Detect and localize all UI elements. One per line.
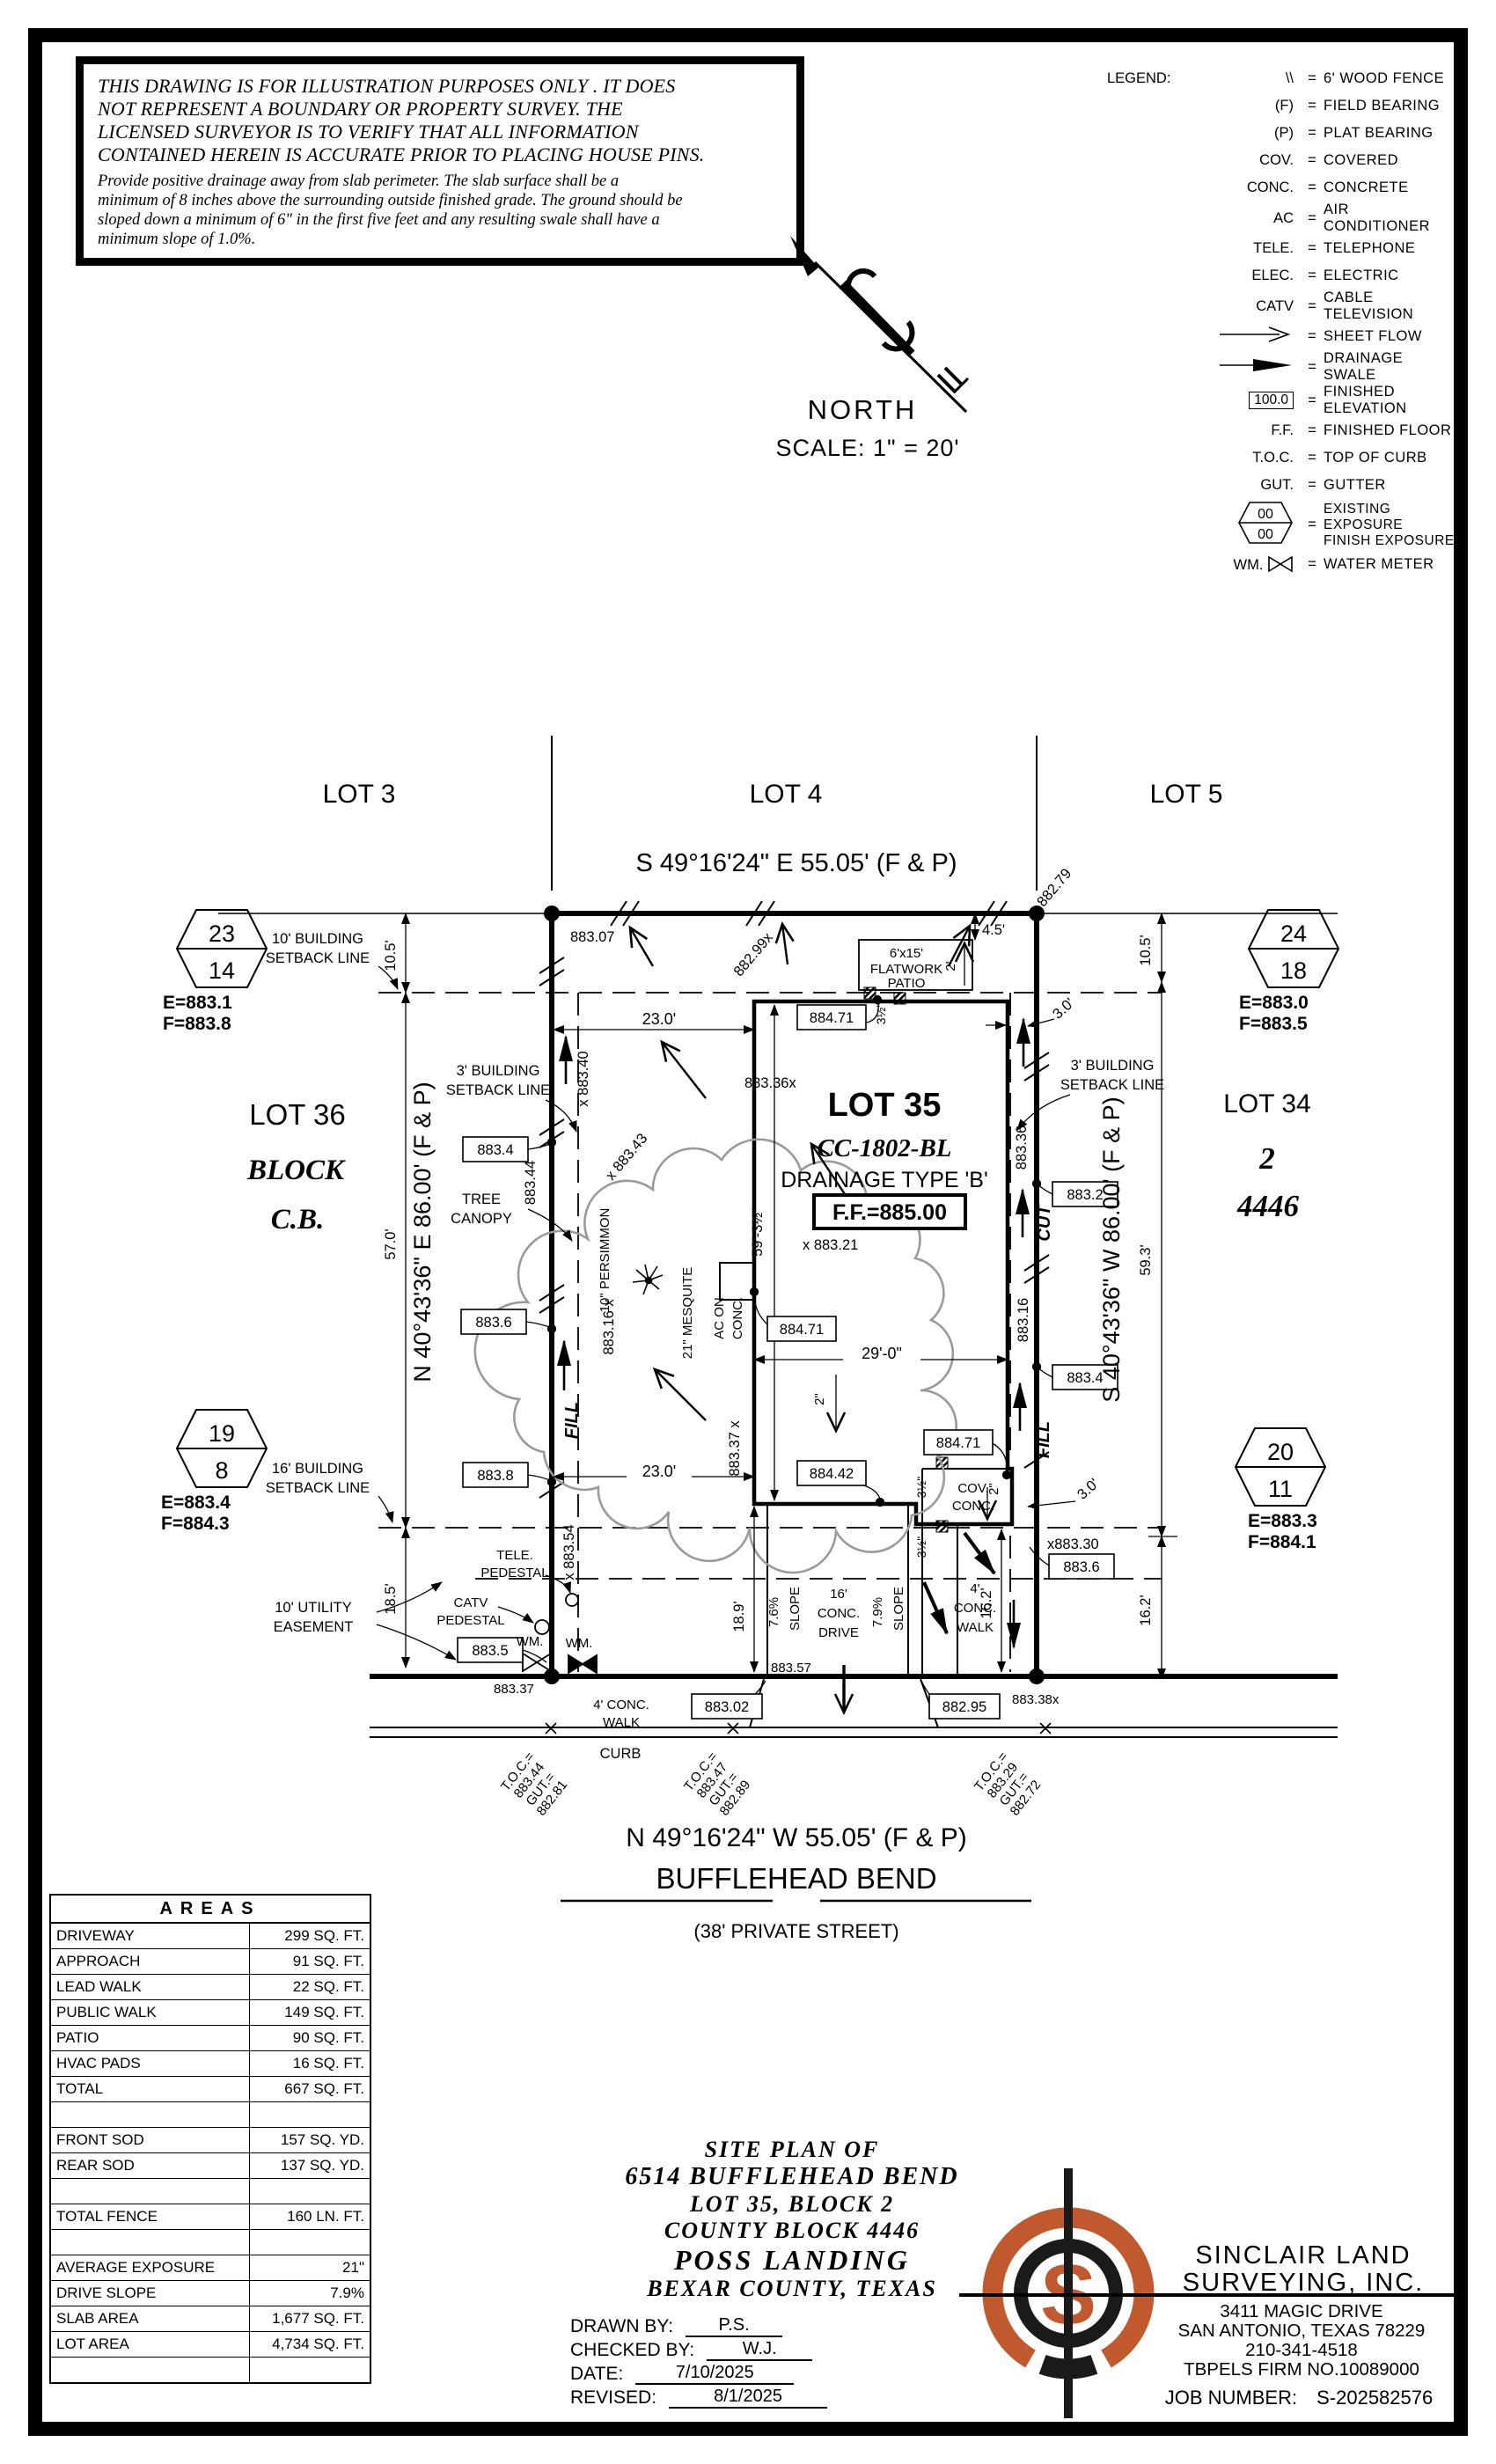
property-boundary — [218, 906, 1338, 1684]
svg-text:29'-0": 29'-0" — [862, 1345, 902, 1362]
finished-elevation: 884.71 — [780, 1322, 824, 1338]
svg-text:SLOPE: SLOPE — [891, 1587, 906, 1631]
svg-text:WM.: WM. — [566, 1636, 593, 1651]
svg-text:SETBACK LINE: SETBACK LINE — [266, 1480, 370, 1496]
finished-floor-elevation: F.F.=885.00 — [832, 1200, 947, 1225]
finished-elevation: 884.42 — [810, 1466, 854, 1482]
svg-text:WALK: WALK — [603, 1715, 640, 1730]
finished-elevation: 883.6 — [1063, 1559, 1099, 1575]
drainage-type: DRAINAGE TYPE 'B' — [781, 1168, 988, 1192]
svg-text:59.3': 59.3' — [1138, 1244, 1154, 1275]
svg-text:10' BUILDING: 10' BUILDING — [272, 931, 363, 947]
svg-text:CONC.: CONC. — [730, 1297, 745, 1339]
svg-text:3.0': 3.0' — [1050, 995, 1077, 1023]
downspout-marker — [894, 993, 906, 1004]
svg-text:x883.30: x883.30 — [1047, 1536, 1099, 1552]
svg-text:883.57: 883.57 — [771, 1661, 811, 1676]
svg-text:E=883.4: E=883.4 — [161, 1492, 231, 1513]
svg-text:2: 2 — [1258, 1141, 1275, 1176]
svg-text:PEDESTAL: PEDESTAL — [480, 1566, 548, 1580]
firm-street: 3411 MAGIC DRIVE — [1132, 2302, 1471, 2321]
svg-text:7.9%: 7.9% — [870, 1597, 885, 1627]
svg-text:EASEMENT: EASEMENT — [274, 1619, 354, 1635]
drawing-credits: DRAWN BY:P.S. CHECKED BY:W.J. DATE:7/10/… — [570, 2314, 827, 2409]
utility-symbols — [523, 1594, 597, 1673]
firm-tbpels: TBPELS FIRM NO.10089000 — [1132, 2360, 1471, 2380]
svg-text:4446: 4446 — [1236, 1189, 1300, 1223]
svg-text:SETBACK LINE: SETBACK LINE — [266, 950, 370, 966]
lot-5-label: LOT 5 — [1150, 780, 1223, 809]
svg-text:CANOPY: CANOPY — [451, 1211, 512, 1227]
svg-text:20: 20 — [1267, 1439, 1294, 1465]
svg-text:882.79: 882.79 — [1034, 866, 1074, 910]
svg-text:SLOPE: SLOPE — [788, 1587, 803, 1631]
svg-text:883.36x: 883.36x — [744, 1075, 796, 1091]
lot-34-label: LOT 34 — [1223, 1089, 1311, 1118]
svg-text:WM.: WM. — [517, 1634, 544, 1649]
svg-text:PEDESTAL: PEDESTAL — [436, 1613, 504, 1628]
svg-text:WALK: WALK — [957, 1620, 994, 1635]
svg-text:TELE.: TELE. — [496, 1548, 533, 1563]
finish-elevation: F=883.8 — [163, 1014, 231, 1034]
existing-elevation: E=883.1 — [163, 993, 232, 1013]
svg-text:23.0': 23.0' — [642, 1010, 676, 1028]
job-number-value: S-202582576 — [1316, 2387, 1433, 2409]
lot-35-label: LOT 35 — [828, 1087, 942, 1124]
svg-text:883.44: 883.44 — [523, 1161, 539, 1205]
svg-text:3½": 3½" — [874, 1003, 888, 1024]
svg-text:883.38x: 883.38x — [1012, 1692, 1060, 1707]
spot-elevation: 883.07 — [570, 929, 614, 945]
svg-text:x 883.21: x 883.21 — [803, 1237, 858, 1253]
house-model: CC-1802-BL — [817, 1134, 951, 1162]
svg-text:7.6%: 7.6% — [766, 1597, 781, 1627]
lot-36-label: LOT 36 — [249, 1098, 345, 1131]
svg-text:2": 2" — [986, 1483, 1001, 1495]
svg-text:CONC.: CONC. — [952, 1499, 994, 1514]
svg-text:883.16 x: 883.16 x — [601, 1299, 617, 1355]
svg-text:DRIVE: DRIVE — [818, 1625, 859, 1640]
svg-text:F=884.3: F=884.3 — [161, 1514, 230, 1534]
site-plan-sheet: { "disclaimer": { "title_lines": [ "THIS… — [0, 0, 1496, 2464]
crosshair-line — [959, 2293, 1454, 2297]
firm-phone: 210-341-4518 — [1132, 2341, 1471, 2360]
svg-text:18.5': 18.5' — [383, 1583, 399, 1614]
street-type: (38' PRIVATE STREET) — [693, 1920, 898, 1942]
svg-text:C.B.: C.B. — [271, 1204, 325, 1236]
areas-table: AREAS DRIVEWAY299 SQ. FT. APPROACH91 SQ.… — [49, 1894, 371, 2384]
svg-text:883.37: 883.37 — [494, 1682, 534, 1697]
svg-text:19: 19 — [209, 1420, 235, 1447]
svg-text:16.2': 16.2' — [1138, 1595, 1154, 1625]
curb-label: CURB — [600, 1746, 642, 1762]
catv-pedestal-symbol — [535, 1620, 549, 1634]
svg-text:PATIO: PATIO — [888, 976, 926, 991]
svg-text:23.0': 23.0' — [642, 1463, 676, 1480]
svg-text:10.5': 10.5' — [1138, 935, 1154, 965]
date-value: 7/10/2025 — [635, 2363, 794, 2385]
drawn-by-value: P.S. — [686, 2315, 782, 2337]
svg-text:14: 14 — [209, 957, 235, 984]
firm-address: 3411 MAGIC DRIVE SAN ANTONIO, TEXAS 7822… — [1132, 2302, 1471, 2380]
svg-text:6'x15': 6'x15' — [890, 946, 923, 961]
svg-text:F=884.1: F=884.1 — [1248, 1532, 1316, 1552]
lot-3-label: LOT 3 — [323, 780, 396, 809]
street-bearing: N 49°16'24" W 55.05' (F & P) — [626, 1823, 967, 1852]
cut-label: CUT — [1035, 1204, 1054, 1242]
svg-text:AC ON: AC ON — [712, 1297, 727, 1339]
svg-text:57.0': 57.0' — [383, 1228, 399, 1259]
svg-text:E=883.3: E=883.3 — [1248, 1511, 1317, 1531]
svg-text:3½": 3½" — [914, 1536, 928, 1558]
svg-text:3' BUILDING: 3' BUILDING — [1071, 1058, 1155, 1074]
svg-text:10.5': 10.5' — [383, 940, 399, 971]
right-bearing: S 40°43'36" W 86.00' (F & P) — [1098, 1096, 1125, 1402]
checked-by-value: W.J. — [707, 2339, 812, 2361]
svg-text:2": 2" — [812, 1393, 827, 1405]
title-line: SITE PLAN OF — [458, 2137, 1126, 2163]
svg-text:x 883.43: x 883.43 — [603, 1131, 650, 1184]
water-meter-symbol — [568, 1655, 597, 1673]
svg-text:3.0': 3.0' — [1074, 1476, 1102, 1503]
finished-elevation: 883.4 — [477, 1142, 513, 1158]
svg-text:BLOCK: BLOCK — [246, 1155, 346, 1186]
finished-elevation: 884.71 — [810, 1010, 854, 1026]
svg-text:x 883.40: x 883.40 — [576, 1051, 591, 1106]
svg-text:SETBACK LINE: SETBACK LINE — [1060, 1077, 1164, 1093]
svg-text:E=883.0: E=883.0 — [1239, 993, 1309, 1013]
finished-elevation: 883.02 — [705, 1699, 749, 1715]
svg-text:883.16: 883.16 — [1016, 1298, 1031, 1342]
svg-text:CATV: CATV — [454, 1595, 488, 1610]
svg-text:SETBACK LINE: SETBACK LINE — [446, 1082, 550, 1098]
svg-text:4.5': 4.5' — [982, 922, 1005, 938]
svg-text:21" MESQUITE: 21" MESQUITE — [680, 1267, 695, 1360]
downspout-marker — [936, 1521, 948, 1532]
svg-text:CONC.: CONC. — [954, 1601, 996, 1616]
svg-text:x 883.54: x 883.54 — [561, 1524, 577, 1580]
firm-city: SAN ANTONIO, TEXAS 78229 — [1132, 2321, 1471, 2341]
tree-trunk-icon — [633, 1265, 663, 1294]
svg-text:3' BUILDING: 3' BUILDING — [457, 1063, 540, 1079]
svg-text:8: 8 — [215, 1457, 228, 1484]
finished-elevation: 884.71 — [936, 1435, 980, 1451]
svg-text:59'-3½": 59'-3½" — [750, 1207, 766, 1257]
svg-text:882.99x: 882.99x — [730, 929, 776, 979]
svg-text:18.9': 18.9' — [731, 1601, 747, 1632]
fill-label: FILL — [562, 1402, 582, 1439]
rear-bearing: S 49°16'24" E 55.05' (F & P) — [635, 849, 957, 877]
svg-text:4' CONC.: 4' CONC. — [593, 1698, 649, 1712]
svg-text:883.37 x: 883.37 x — [727, 1420, 743, 1477]
svg-text:16' BUILDING: 16' BUILDING — [272, 1461, 363, 1477]
svg-text:23: 23 — [209, 920, 235, 947]
lot-4-label: LOT 4 — [750, 780, 823, 809]
svg-text:COV.: COV. — [957, 1481, 988, 1496]
toc-gut-stack: T.O.C.= 883.44 GUT.= 882.81 T.O.C.= 883.… — [498, 1749, 1044, 1819]
finished-elevation: 883.8 — [477, 1468, 513, 1484]
finished-elevation: 883.5 — [472, 1643, 508, 1659]
fill-label: FILL — [1034, 1421, 1053, 1458]
svg-text:F=883.5: F=883.5 — [1239, 1014, 1308, 1034]
job-number-row: JOB NUMBER: S-202582576 — [1126, 2387, 1471, 2409]
svg-text:FLATWORK: FLATWORK — [870, 962, 942, 977]
svg-text:16': 16' — [830, 1587, 847, 1602]
ac-pad — [720, 1263, 754, 1300]
svg-text:TREE: TREE — [462, 1192, 501, 1207]
svg-text:CONC.: CONC. — [818, 1606, 860, 1621]
revised-value: 8/1/2025 — [669, 2387, 827, 2409]
svg-text:4': 4' — [970, 1581, 979, 1596]
street-name: BUFFLEHEAD BEND — [656, 1862, 936, 1895]
svg-text:11: 11 — [1268, 1476, 1293, 1502]
finished-elevation: 883.6 — [475, 1315, 511, 1331]
svg-text:883.36: 883.36 — [1014, 1126, 1030, 1170]
left-bearing: N 40°43'36" E 86.00' (F & P) — [409, 1082, 436, 1382]
svg-text:2': 2' — [943, 961, 958, 971]
svg-text:10' UTILITY: 10' UTILITY — [275, 1600, 352, 1616]
svg-text:24: 24 — [1280, 920, 1307, 947]
tele-pedestal-symbol — [566, 1594, 578, 1606]
firm-name: SINCLAIR LAND SURVEYING, INC. — [1137, 2242, 1470, 2297]
areas-table-title: AREAS — [51, 1896, 370, 1924]
finished-elevation: 882.95 — [942, 1699, 986, 1715]
svg-text:10" PERSIMMON: 10" PERSIMMON — [598, 1208, 612, 1313]
svg-text:18: 18 — [1280, 957, 1307, 984]
svg-text:3½": 3½" — [914, 1477, 928, 1498]
